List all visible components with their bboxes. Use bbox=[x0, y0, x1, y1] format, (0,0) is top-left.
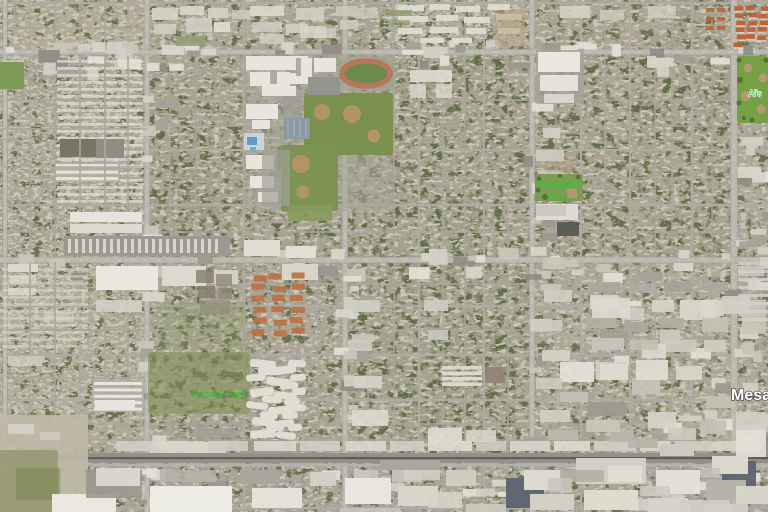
svg-text:Evergreen: Evergreen bbox=[537, 179, 581, 190]
svg-text:Park: Park bbox=[549, 192, 569, 203]
svg-text:Beverly Park: Beverly Park bbox=[192, 389, 246, 400]
svg-text:Al's: Al's bbox=[749, 89, 762, 98]
svg-text:Mesa: Mesa bbox=[731, 387, 768, 404]
